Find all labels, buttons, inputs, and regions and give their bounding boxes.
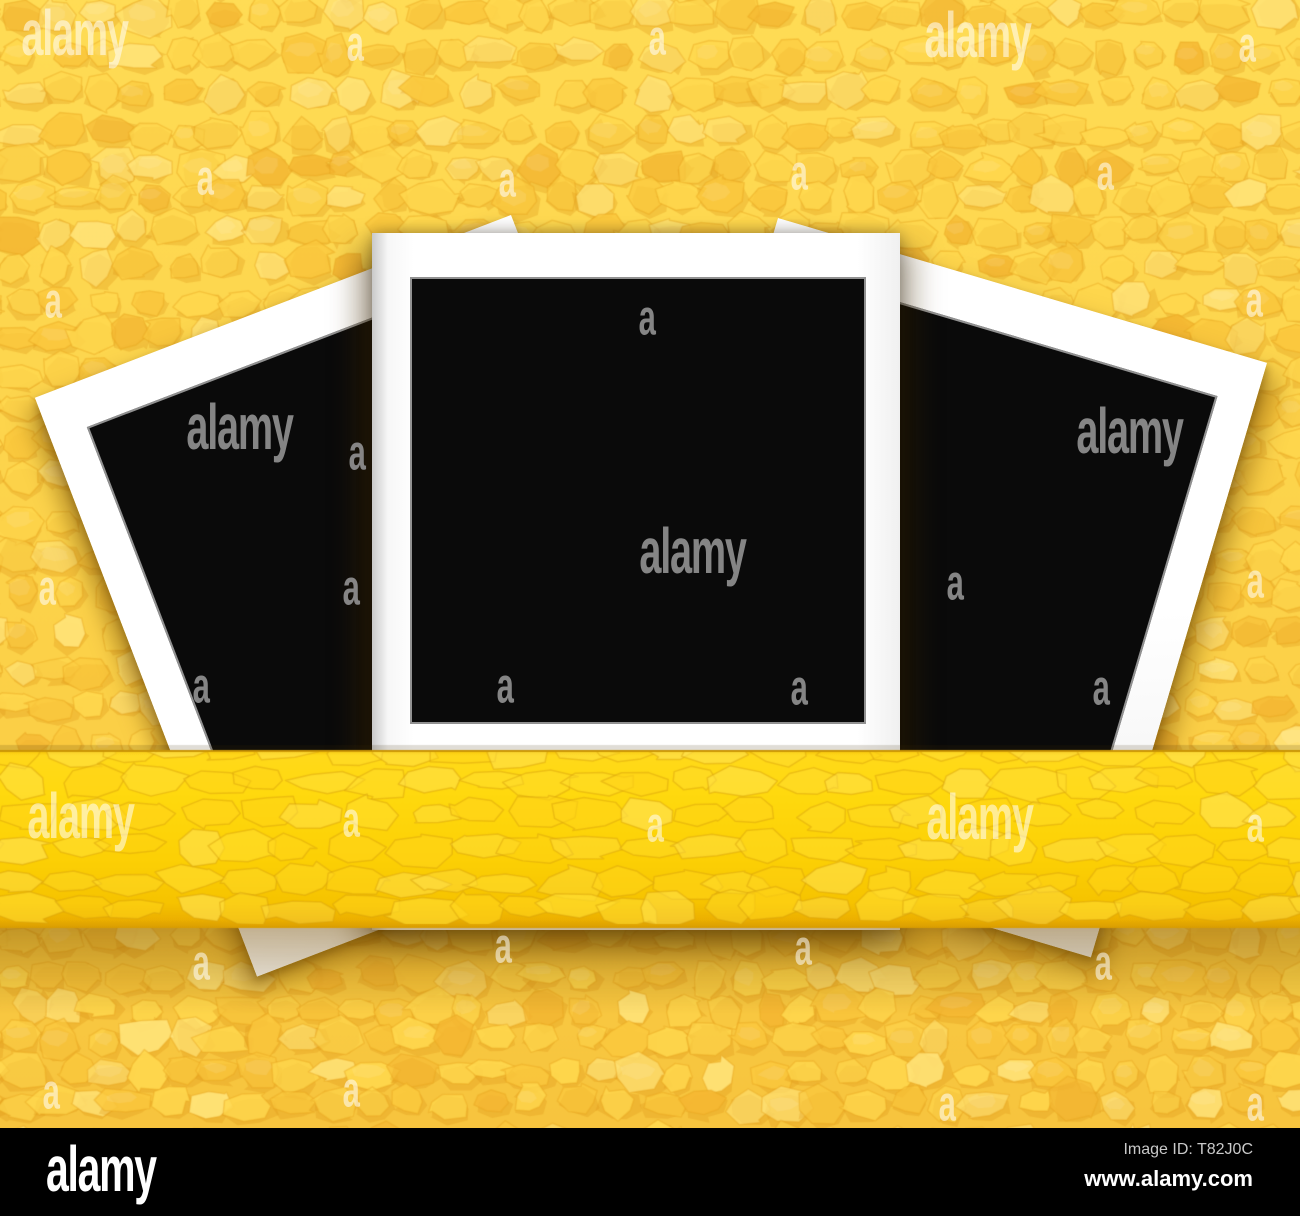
footer-meta: Image ID: T82J0C www.alamy.com [1084,1141,1253,1192]
alamy-logo: alamy [46,1132,156,1206]
image-id-text: Image ID: T82J0C [1084,1141,1253,1159]
alamy-url-text: www.alamy.com [1084,1166,1253,1192]
ribbon-banner [0,0,1300,1216]
footer-bar: alamy Image ID: T82J0C www.alamy.com [0,1128,1300,1216]
stock-image-preview: alamyaaalamyaaaaaaaaalamyaalamyaaalamyaa… [0,0,1300,1216]
